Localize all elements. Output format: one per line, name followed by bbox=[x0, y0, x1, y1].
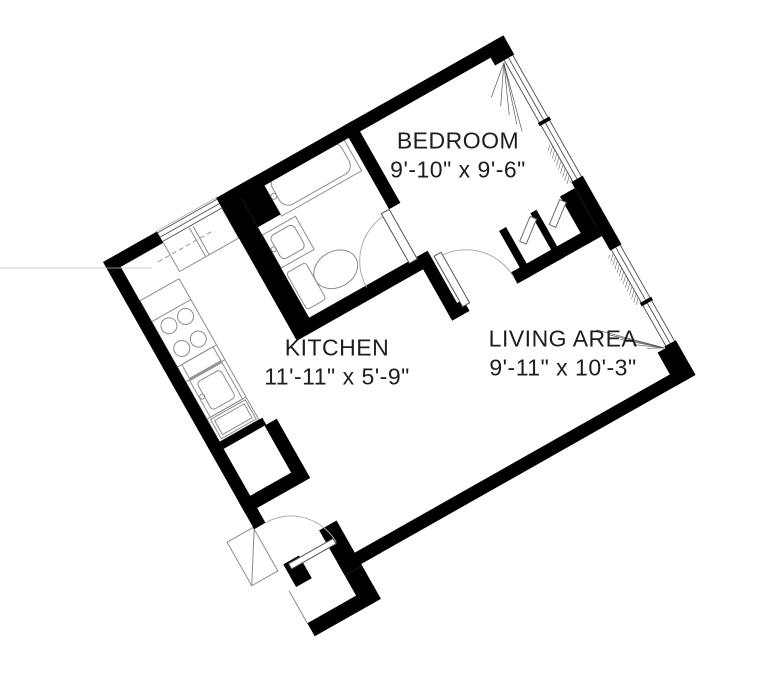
room-label-bedroom: BEDROOM 9'-10" x 9'-6" bbox=[390, 126, 526, 184]
bedroom-name: BEDROOM bbox=[390, 126, 526, 155]
room-label-kitchen: KITCHEN 11'-11" x 5'-9" bbox=[264, 333, 410, 391]
bedroom-dimensions: 9'-10" x 9'-6" bbox=[390, 155, 526, 184]
living-area-dimensions: 9'-11" x 10'-3" bbox=[489, 353, 638, 382]
floor-plan-page: BEDROOM 9'-10" x 9'-6" KITCHEN 11'-11" x… bbox=[0, 0, 771, 675]
kitchen-dimensions: 11'-11" x 5'-9" bbox=[264, 362, 410, 391]
windows-layer bbox=[157, 35, 676, 536]
living-area-name: LIVING AREA bbox=[489, 324, 638, 353]
room-label-living-area: LIVING AREA 9'-11" x 10'-3" bbox=[489, 324, 638, 382]
kitchen-name: KITCHEN bbox=[264, 333, 410, 362]
